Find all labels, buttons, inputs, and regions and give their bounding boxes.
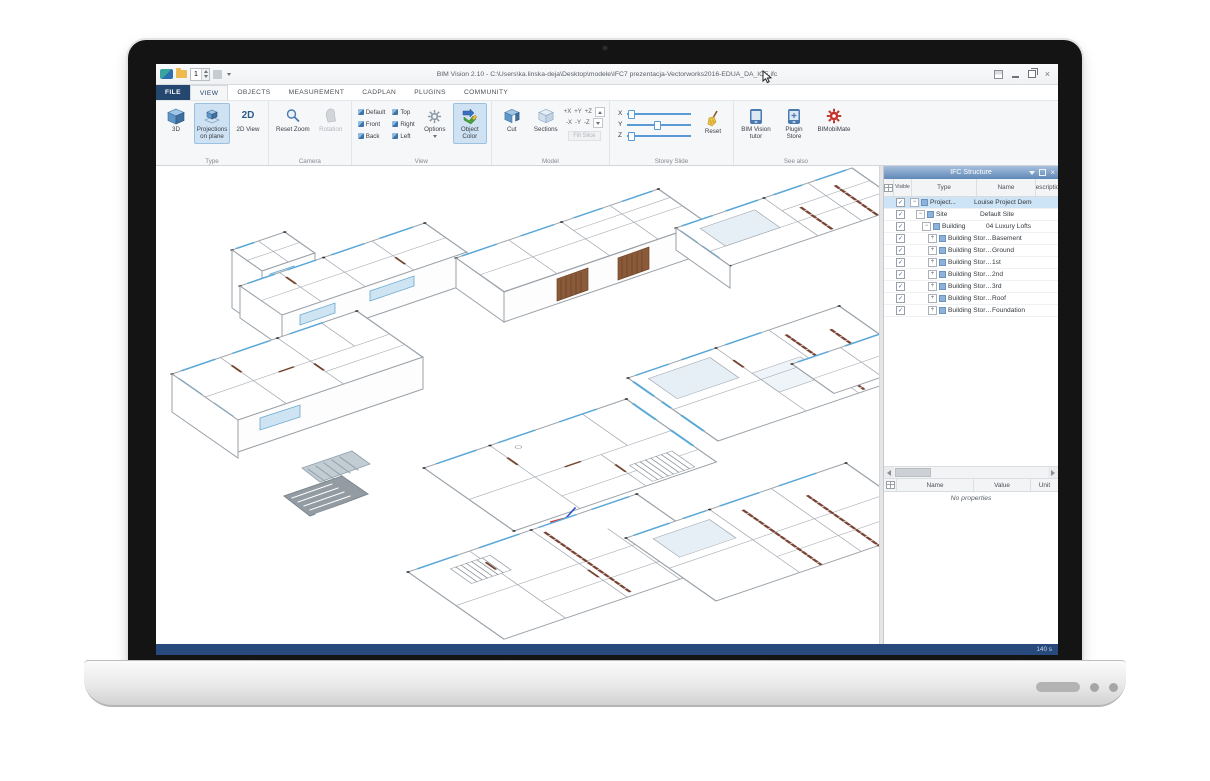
view-default-button[interactable]: Default (356, 106, 388, 118)
app-logo-icon (160, 69, 173, 79)
tree-grid-icon[interactable] (884, 179, 894, 196)
structure-tree-header: Visible Type Name Description (884, 179, 1058, 197)
options-button[interactable]: Options (419, 103, 451, 141)
structure-tree-row[interactable]: ✓ − Project... Louise Project Demo (884, 197, 1058, 209)
panel-close-icon[interactable]: × (1050, 169, 1055, 177)
2d-view-button[interactable]: 2D 2D View (232, 103, 264, 137)
view-left-button[interactable]: Left (390, 130, 416, 142)
column-type[interactable]: Type (912, 179, 977, 196)
options-label: Options (424, 127, 445, 134)
element-type: Building Storey (948, 283, 992, 290)
storey-stepper[interactable] (190, 68, 210, 81)
ifc-structure-header[interactable]: IFC Structure × (884, 166, 1058, 179)
base-dot (1090, 683, 1099, 692)
column-description[interactable]: Description (1036, 179, 1058, 196)
style-button[interactable] (994, 70, 1003, 79)
object-color-button[interactable]: Object Color (453, 103, 487, 144)
status-bar: 140 s (156, 644, 1058, 655)
structure-tree-row[interactable]: ✓ + Building Storey 1st (884, 257, 1058, 269)
title-bar: BIM Vision 2.10 - C:\Users\ka.linska-dej… (156, 64, 1058, 85)
element-type-icon (933, 223, 940, 230)
tab-view[interactable]: VIEW (190, 85, 228, 100)
ribbon-group-see-also: BIM Vision tutor Plugin Store BIMobiMate… (734, 101, 858, 165)
element-type: Building Storey (948, 295, 992, 302)
ribbon-group-model: Cut Sections +X +Y +Z -X (492, 101, 610, 165)
expand-toggle-icon[interactable]: − (910, 198, 919, 207)
storey-slider-y[interactable] (627, 121, 691, 128)
red-gear-icon (826, 106, 842, 126)
reset-zoom-label: Reset Zoom (276, 127, 310, 134)
element-description (1038, 209, 1058, 220)
quick-access-extra-icon[interactable] (213, 70, 222, 79)
element-type: Building Storey (948, 247, 992, 254)
visibility-checkbox[interactable]: ✓ (896, 246, 905, 255)
plus-y-button[interactable]: +Y (574, 109, 582, 115)
panel-menu-icon[interactable] (1029, 171, 1035, 175)
element-type: Building Storey (948, 235, 992, 242)
window-title: BIM Vision 2.10 - C:\Users\ka.linska-dej… (156, 71, 1058, 78)
reset-sliders-label: Reset (705, 129, 721, 136)
view-back-label: Back (366, 133, 380, 140)
element-type: Building Storey (948, 307, 992, 314)
element-type: Project... (930, 199, 956, 206)
webcam-dot (602, 45, 608, 51)
element-name: 1st (992, 257, 1050, 268)
reset-zoom-button[interactable]: Reset Zoom (273, 103, 313, 137)
ribbon-tabs: FILE VIEW OBJECTS MEASUREMENT CADPLAN PL… (156, 85, 1058, 101)
3d-label: 3D (172, 127, 180, 134)
slice-up-button[interactable] (595, 107, 605, 117)
visibility-checkbox[interactable]: ✓ (896, 258, 905, 267)
prop-column-unit[interactable]: Unit (1031, 479, 1058, 491)
panel-pin-icon[interactable] (1039, 169, 1046, 176)
structure-tree-row[interactable]: ✓ + Building Storey Ground (884, 245, 1058, 257)
visibility-checkbox[interactable]: ✓ (896, 294, 905, 303)
rotation-label: Rotation (319, 127, 342, 134)
structure-tree-row[interactable]: ✓ + Building Storey Foundation (884, 305, 1058, 317)
element-name: 04 Luxury Lofts (986, 221, 1044, 232)
visibility-checkbox[interactable]: ✓ (896, 210, 905, 219)
tutor-icon (749, 106, 763, 126)
minus-y-button[interactable]: -Y (575, 120, 581, 126)
gear-icon (427, 106, 442, 126)
column-name[interactable]: Name (977, 179, 1036, 196)
storey-slider-x[interactable] (627, 110, 691, 117)
view-cube-icon (392, 133, 398, 139)
object-color-label: Object Color (456, 127, 484, 141)
element-name: Default Site (980, 209, 1038, 220)
visibility-checkbox[interactable]: ✓ (896, 282, 905, 291)
slider-y-label: Y (618, 121, 623, 128)
visibility-checkbox[interactable]: ✓ (896, 306, 905, 315)
quick-access-toolbar (156, 68, 231, 81)
ribbon-group-type: 3D Projections on plane 2D 2D View Type (156, 101, 269, 165)
horizontal-scrollbar[interactable] (884, 466, 1058, 479)
element-description (1044, 221, 1058, 232)
laptop-bezel: BIM Vision 2.10 - C:\Users\ka.linska-dej… (128, 40, 1082, 662)
slider-x-label: X (618, 110, 623, 117)
expand-toggle-icon[interactable]: + (928, 282, 937, 291)
2d-icon: 2D (242, 106, 255, 126)
element-type-icon (939, 247, 946, 254)
group-label-type: Type (156, 158, 268, 165)
base-dot (1109, 683, 1118, 692)
structure-tree-row[interactable]: ✓ − Building 04 Luxury Lofts (884, 221, 1058, 233)
scroll-left-icon[interactable] (884, 467, 894, 478)
tab-plugins[interactable]: PLUGINS (405, 85, 455, 100)
slice-axis-controls: +X +Y +Z -X -Y -Z Fill Slice (564, 103, 605, 141)
base-pill (1036, 682, 1080, 692)
sections-label: Sections (534, 127, 558, 134)
structure-tree-row[interactable]: ✓ + Building Storey Basement (884, 233, 1058, 245)
structure-tree-row[interactable]: ✓ + Building Storey 2nd (884, 269, 1058, 281)
storey-stepper-input[interactable] (191, 69, 201, 80)
element-description (1050, 281, 1058, 292)
ribbon-group-camera: Reset Zoom Rotation Camera (269, 101, 352, 165)
view-right-button[interactable]: Right (390, 118, 416, 130)
cube-3d-icon (167, 106, 185, 126)
broom-icon (705, 108, 720, 128)
ifc-structure-panel: IFC Structure × Visible Type Name Descri… (883, 166, 1058, 644)
plus-x-button[interactable]: +X (564, 109, 572, 115)
scrollbar-thumb[interactable] (895, 468, 931, 477)
element-type-icon (939, 307, 946, 314)
element-description (1032, 197, 1058, 208)
rotation-icon (324, 106, 338, 126)
structure-tree-row[interactable]: ✓ + Building Storey 3rd (884, 281, 1058, 293)
expand-toggle-icon[interactable]: − (916, 210, 925, 219)
no-properties-message: No properties (884, 492, 1058, 644)
plus-z-button[interactable]: +Z (585, 109, 592, 115)
properties-header: Name Value Unit (884, 479, 1058, 492)
element-description (1050, 293, 1058, 304)
structure-tree-row[interactable]: ✓ + Building Storey Roof (884, 293, 1058, 305)
element-description (1050, 269, 1058, 280)
reset-sliders-button[interactable]: Reset (697, 105, 729, 139)
open-folder-icon[interactable] (176, 70, 187, 78)
group-label-see-also: See also (734, 158, 858, 165)
3d-button[interactable]: 3D (160, 103, 192, 137)
element-type-icon (939, 283, 946, 290)
view-cube-icon (358, 109, 364, 115)
visibility-checkbox[interactable]: ✓ (896, 270, 905, 279)
sections-cube-icon (538, 106, 554, 126)
expand-toggle-icon[interactable]: + (928, 258, 937, 267)
element-name: 2nd (992, 269, 1050, 280)
plugin-store-button[interactable]: Plugin Store (776, 103, 812, 144)
ribbon-group-view: Default Top Front Right Back Left Option… (352, 101, 492, 165)
view-cube-icon (358, 133, 364, 139)
element-description (1050, 233, 1058, 244)
expand-toggle-icon[interactable]: + (928, 270, 937, 279)
slice-down-button[interactable] (593, 118, 603, 128)
element-type-icon (921, 199, 928, 206)
expand-toggle-icon[interactable]: + (928, 246, 937, 255)
view-front-label: Front (366, 121, 380, 128)
element-name: 3rd (992, 281, 1050, 292)
view-right-label: Right (400, 121, 414, 128)
element-type: Building Storey (948, 271, 992, 278)
slider-x-thumb[interactable] (628, 110, 635, 119)
tab-community[interactable]: COMMUNITY (455, 85, 517, 100)
scroll-right-icon[interactable] (1048, 467, 1058, 478)
group-label-model: Model (492, 158, 609, 165)
view-back-button[interactable]: Back (356, 130, 388, 142)
slider-z-thumb[interactable] (628, 132, 635, 141)
view-top-label: Top (400, 109, 410, 116)
view-cube-icon (392, 109, 398, 115)
element-type: Building (942, 223, 965, 230)
projections-on-plane-button[interactable]: Projections on plane (194, 103, 230, 144)
ribbon: 3D Projections on plane 2D 2D View Type (156, 101, 1058, 166)
stepper-down-icon[interactable] (204, 75, 208, 78)
model-viewport[interactable] (156, 166, 879, 644)
tab-cadplan[interactable]: CADPLAN (353, 85, 405, 100)
view-cube-icon (392, 121, 398, 127)
object-color-icon (461, 106, 478, 126)
prop-column-name[interactable]: Name (897, 479, 974, 491)
prop-column-value[interactable]: Value (974, 479, 1031, 491)
expand-toggle-icon[interactable]: − (922, 222, 931, 231)
structure-tree: ✓ − Project... Louise Project Demo ✓ − S… (884, 197, 1058, 317)
ribbon-group-storey-slide: X Y Z Reset (610, 101, 734, 165)
element-description (1050, 245, 1058, 256)
tab-file[interactable]: FILE (156, 85, 190, 100)
element-type-icon (939, 259, 946, 266)
visibility-checkbox[interactable]: ✓ (896, 222, 905, 231)
status-time: 140 s (1036, 646, 1052, 653)
quick-access-caret-icon[interactable] (227, 73, 231, 76)
element-type: Site (936, 211, 947, 218)
cut-button[interactable]: Cut (496, 103, 528, 137)
structure-tree-row[interactable]: ✓ − Site Default Site (884, 209, 1058, 221)
visibility-checkbox[interactable]: ✓ (896, 198, 905, 207)
rotation-button[interactable]: Rotation (315, 103, 347, 137)
model-canvas[interactable] (156, 166, 879, 644)
element-name: Ground (992, 245, 1050, 256)
element-description (1050, 305, 1058, 316)
view-cube-icon (358, 121, 364, 127)
slider-z-label: Z (618, 132, 623, 139)
view-top-button[interactable]: Top (390, 106, 416, 118)
expand-toggle-icon[interactable]: + (928, 306, 937, 315)
group-label-view: View (352, 158, 491, 165)
element-name: Louise Project Demo (974, 197, 1032, 208)
element-type-icon (939, 235, 946, 242)
minus-x-button[interactable]: -X (566, 120, 572, 126)
view-left-label: Left (400, 133, 410, 140)
storey-slider-z[interactable] (627, 132, 691, 139)
element-type-icon (939, 295, 946, 302)
laptop-base (84, 660, 1126, 707)
element-name: Basement (992, 233, 1050, 244)
tab-objects[interactable]: OBJECTS (228, 85, 279, 100)
bim-vision-window: BIM Vision 2.10 - C:\Users\ka.linska-dej… (156, 64, 1058, 655)
group-label-camera: Camera (269, 158, 351, 165)
cut-cube-icon (504, 106, 520, 126)
tree-empty-area (884, 317, 1058, 466)
stepper-up-icon[interactable] (204, 70, 208, 73)
element-type: Building Storey (948, 259, 992, 266)
view-default-label: Default (366, 109, 386, 116)
visibility-checkbox[interactable]: ✓ (896, 234, 905, 243)
bimobimate-label: BIMobiMate (817, 127, 850, 134)
restore-button[interactable] (1028, 70, 1036, 78)
sections-button[interactable]: Sections (530, 103, 562, 137)
view-front-button[interactable]: Front (356, 118, 388, 130)
expand-toggle-icon[interactable]: + (928, 294, 937, 303)
bim-vision-tutor-button[interactable]: BIM Vision tutor (738, 103, 774, 144)
close-button[interactable]: × (1045, 71, 1050, 78)
tutor-label: BIM Vision tutor (741, 127, 771, 141)
minimize-button[interactable] (1012, 76, 1019, 78)
projections-label: Projections on plane (197, 127, 228, 141)
element-description (1050, 257, 1058, 268)
element-name: Roof (992, 293, 1050, 304)
fill-slice-button[interactable]: Fill Slice (568, 131, 600, 141)
store-icon (787, 106, 801, 126)
plugin-store-label: Plugin Store (779, 127, 809, 141)
2d-view-label: 2D View (237, 127, 260, 134)
bimobimate-button[interactable]: BIMobiMate (814, 103, 854, 137)
element-name: Foundation (992, 305, 1050, 316)
column-visible[interactable]: Visible (894, 179, 912, 196)
properties-grid-icon[interactable] (884, 479, 897, 491)
tab-measurement[interactable]: MEASUREMENT (280, 85, 354, 100)
expand-toggle-icon[interactable]: + (928, 234, 937, 243)
options-caret-icon (433, 135, 437, 138)
minus-z-button[interactable]: -Z (584, 120, 590, 126)
magnifier-icon (285, 106, 301, 126)
group-label-storey-slide: Storey Slide (610, 158, 733, 165)
element-type-icon (927, 211, 934, 218)
cut-label: Cut (507, 127, 517, 134)
element-type-icon (939, 271, 946, 278)
projections-icon (203, 106, 221, 126)
slider-y-thumb[interactable] (654, 121, 661, 130)
